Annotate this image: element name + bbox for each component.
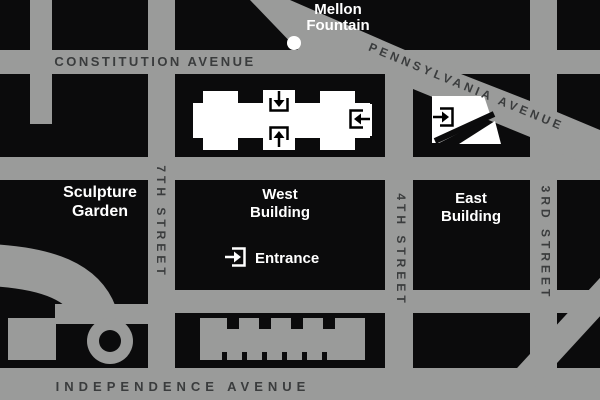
building-notch <box>227 318 239 329</box>
entrance-legend-icon <box>225 246 247 268</box>
mellon-fountain-label-line1: Mellon <box>296 2 380 18</box>
city-block <box>557 0 600 50</box>
east-building-label-line2: Building <box>421 208 521 226</box>
building-notch <box>291 318 303 329</box>
city-block <box>413 313 530 368</box>
fourth-street-label: 4TH STREET <box>394 180 408 320</box>
sculpture-garden-label-line1: Sculpture <box>40 183 160 202</box>
dead-end-street-stub <box>30 74 52 124</box>
third-street-label: 3RD STREET <box>539 176 553 311</box>
building-tick <box>302 352 307 360</box>
east-building-label: East Building <box>421 190 521 226</box>
building-notch <box>323 318 335 329</box>
city-block <box>52 0 148 50</box>
city-block <box>0 74 148 157</box>
west-building-label: West Building <box>230 186 330 222</box>
sculpture-garden-label-line2: Garden <box>40 202 160 221</box>
constitution-avenue-label: CONSTITUTION AVENUE <box>40 54 270 69</box>
nga-area-map: CONSTITUTION AVENUE PENNSYLVANIA AVENUE … <box>0 0 600 400</box>
gray-building-shape <box>8 318 56 360</box>
west-building-south-entrance-icon <box>268 125 290 147</box>
west-building-label-line1: West <box>230 186 330 204</box>
building-tick <box>222 352 227 360</box>
city-block <box>557 180 600 290</box>
fountain-ring-hole <box>99 330 121 352</box>
building-tick <box>282 352 287 360</box>
seventh-street-label: 7TH STREET <box>154 157 168 287</box>
mellon-fountain-label-line2: Fountain <box>296 18 380 34</box>
west-building-label-line2: Building <box>230 204 330 222</box>
mellon-fountain-dot <box>287 36 301 50</box>
west-building-north-entrance-icon <box>268 91 290 113</box>
building-tick <box>322 352 327 360</box>
building-tick <box>262 352 267 360</box>
building-notch <box>259 318 271 329</box>
building-tick <box>242 352 247 360</box>
city-block <box>0 0 30 50</box>
entrance-legend-label: Entrance <box>255 250 319 267</box>
mellon-fountain-label: Mellon Fountain <box>296 2 380 34</box>
independence-avenue-label: INDEPENDENCE AVENUE <box>33 379 333 394</box>
sculpture-garden-label: Sculpture Garden <box>40 183 160 221</box>
east-building-entrance-icon <box>433 106 455 128</box>
west-building-east-entrance-icon <box>348 108 370 130</box>
east-building-label-line1: East <box>421 190 521 208</box>
